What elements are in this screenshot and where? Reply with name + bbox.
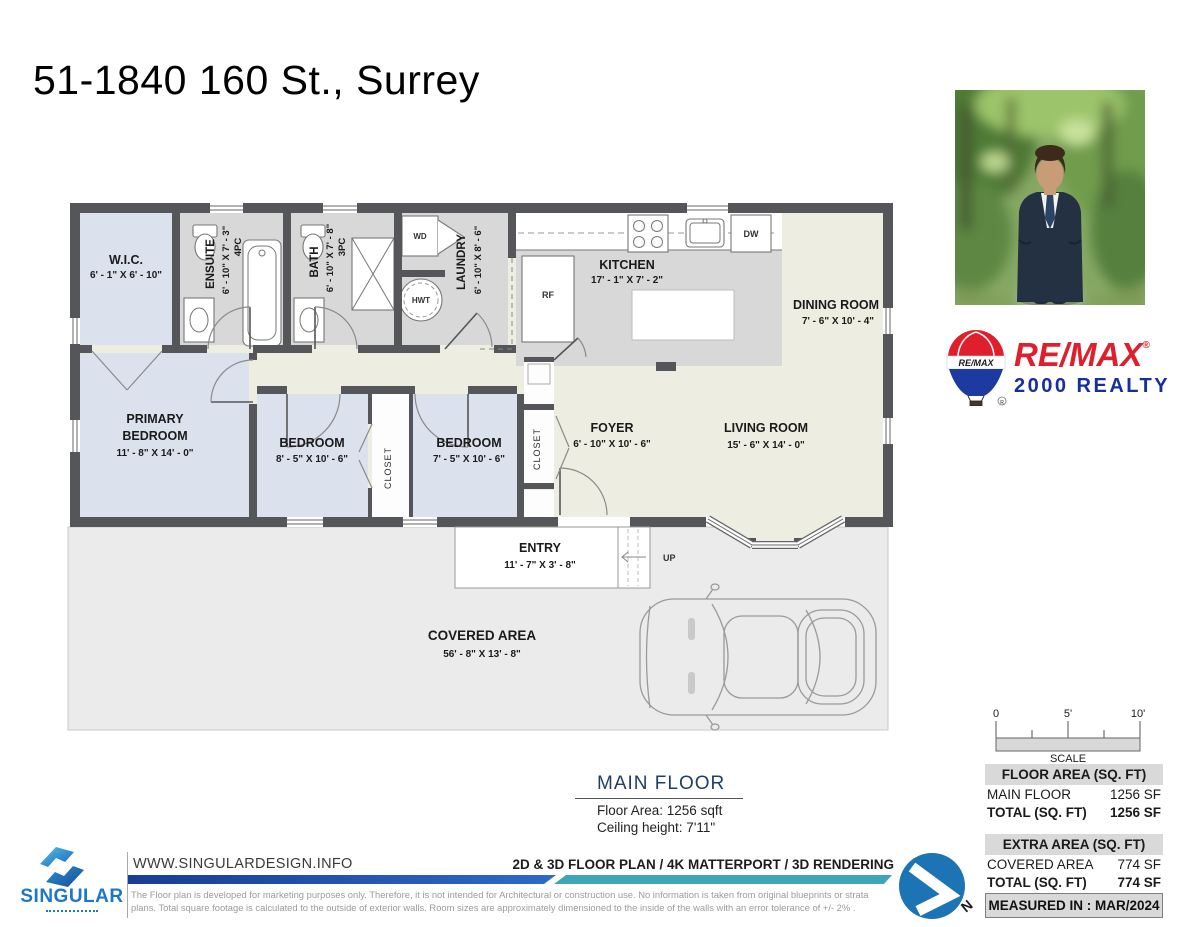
table-row: COVERED AREA774 SF: [985, 855, 1163, 873]
svg-text:10': 10': [1131, 708, 1145, 720]
svg-text:8' - 5" X 10' - 6": 8' - 5" X 10' - 6": [276, 454, 348, 465]
room-label-laundry: LAUNDRY: [456, 234, 468, 290]
remax-logo: RE/MAX R RE/MAX® 2000 REALTY: [944, 328, 1174, 406]
room-label-wic: W.I.C.: [109, 253, 143, 267]
svg-text:0: 0: [993, 708, 999, 720]
svg-text:RE/MAX: RE/MAX: [958, 358, 994, 368]
room-label-bedroom2: BEDROOM: [279, 436, 344, 450]
svg-text:11' - 7" X 3' - 8": 11' - 7" X 3' - 8": [504, 560, 576, 571]
room-label-dining: DINING ROOM: [793, 298, 879, 312]
svg-text:7' - 6" X 10' - 4": 7' - 6" X 10' - 4": [802, 316, 874, 327]
island-icon: [632, 290, 734, 340]
svg-text:4PC: 4PC: [233, 238, 244, 257]
flyer-page: 51-1840 160 St., Surrey: [0, 0, 1200, 927]
svg-text:6' - 10" X 10' - 6": 6' - 10" X 10' - 6": [573, 439, 651, 450]
stove-icon: [628, 215, 668, 252]
svg-text:6' - 1" X 6' - 10": 6' - 1" X 6' - 10": [90, 270, 162, 281]
room-label-kitchen: KITCHEN: [599, 258, 655, 272]
singular-logo-icon: [36, 842, 88, 888]
measured-in-badge: MEASURED IN : MAR/2024: [985, 893, 1163, 918]
room-label-entry: ENTRY: [519, 541, 562, 555]
floor-area-text: Floor Area: 1256 sqft: [597, 803, 755, 818]
svg-text:17' - 1" X 7' - 2": 17' - 1" X 7' - 2": [591, 275, 663, 286]
main-floor-info: MAIN FLOOR Floor Area: 1256 sqft Ceiling…: [575, 773, 755, 835]
vanity-icon: [294, 298, 324, 342]
main-floor-title: MAIN FLOOR: [597, 773, 755, 795]
svg-text:BEDROOM: BEDROOM: [122, 429, 187, 443]
svg-text:56' - 8" X 13' - 8": 56' - 8" X 13' - 8": [443, 649, 521, 660]
closet-label: CLOSET: [532, 428, 542, 470]
scale-bar: 0 5' 10' SCALE: [988, 705, 1148, 763]
disclaimer-line: plans. Total square footage is calculate…: [131, 902, 855, 913]
closet-label: CLOSET: [383, 447, 393, 489]
realtor-photo: [955, 90, 1145, 305]
svg-text:5': 5': [1064, 708, 1072, 720]
singular-brand-text: SINGULAR: [20, 886, 124, 908]
entry-porch: [455, 527, 650, 588]
room-label-bath: BATH: [309, 246, 321, 277]
room-label-living: LIVING ROOM: [724, 421, 808, 435]
ceiling-height-text: Ceiling height: 7'11": [597, 820, 755, 835]
floor-vent-icon: [656, 362, 676, 371]
room-label-covered: COVERED AREA: [428, 628, 537, 643]
table-row: TOTAL (SQ. FT)774 SF: [985, 873, 1163, 891]
svg-text:R: R: [1000, 400, 1004, 406]
room-label-bedroom3: BEDROOM: [436, 436, 501, 450]
floor-plan: W.I.C. 6' - 1" X 6' - 10" ENSUITE 6' - 1…: [65, 195, 900, 740]
north-arrow-icon: N: [895, 846, 979, 927]
page-title: 51-1840 160 St., Surrey: [33, 57, 480, 104]
svg-text:6' - 10" X 8' - 6": 6' - 10" X 8' - 6": [473, 226, 484, 294]
svg-text:6' - 10" X 7' - 8": 6' - 10" X 7' - 8": [325, 224, 336, 292]
footer-bars: [128, 872, 894, 888]
svg-text:11' - 8" X 14' - 0": 11' - 8" X 14' - 0": [116, 448, 193, 459]
disclaimer-line: The Floor plan is developed for marketin…: [131, 889, 869, 900]
room-label-ensuite: ENSUITE: [205, 239, 217, 289]
singular-brand-underline: [46, 910, 98, 912]
remax-balloon-icon: RE/MAX R: [944, 328, 1008, 406]
room-label-primary: PRIMARY: [126, 412, 184, 426]
remax-wordmark: RE/MAX®: [1014, 328, 1170, 373]
table-header: FLOOR AREA (SQ. FT): [985, 764, 1163, 785]
rf-label: RF: [542, 290, 554, 300]
wd-label: WD: [413, 232, 427, 241]
svg-text:3PC: 3PC: [337, 238, 348, 257]
extra-area-table: EXTRA AREA (SQ. FT) COVERED AREA774 SF T…: [985, 834, 1163, 891]
floor-area-table: FLOOR AREA (SQ. FT) MAIN FLOOR1256 SF TO…: [985, 764, 1163, 821]
remax-subtitle: 2000 REALTY: [1014, 375, 1170, 398]
svg-text:15' - 6" X 14' - 0": 15' - 6" X 14' - 0": [727, 440, 805, 451]
dw-label: DW: [744, 229, 759, 239]
hwt-label: HWT: [412, 296, 430, 305]
table-header: EXTRA AREA (SQ. FT): [985, 834, 1163, 855]
table-row: MAIN FLOOR1256 SF: [985, 785, 1163, 803]
website-text: WWW.SINGULARDESIGN.INFO: [133, 856, 353, 872]
svg-text:7' - 5" X 10' - 6": 7' - 5" X 10' - 6": [433, 454, 505, 465]
up-label: UP: [663, 553, 676, 563]
divider: [575, 798, 743, 799]
svg-text:SCALE: SCALE: [1050, 753, 1086, 763]
svg-text:6' - 10" X 7' - 3": 6' - 10" X 7' - 3": [221, 226, 232, 294]
room-label-foyer: FOYER: [590, 421, 633, 435]
table-row: TOTAL (SQ. FT)1256 SF: [985, 803, 1163, 821]
services-text: 2D & 3D FLOOR PLAN / 4K MATTERPORT / 3D …: [470, 857, 894, 872]
